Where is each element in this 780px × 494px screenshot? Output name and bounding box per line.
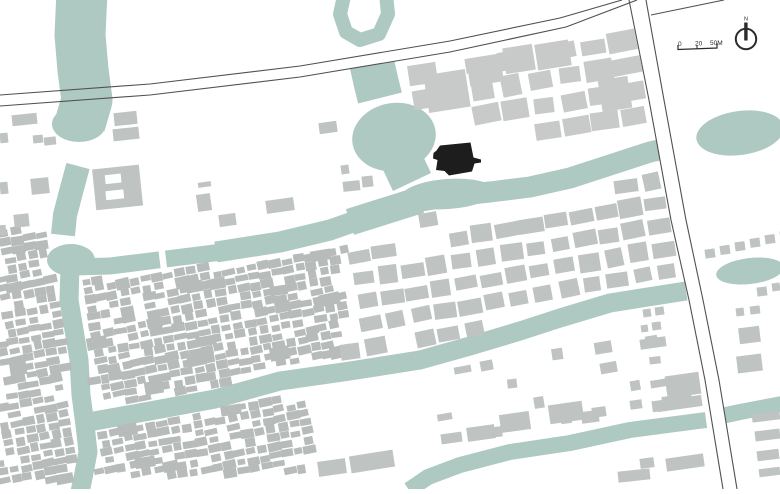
svg-text:50M: 50M: [710, 40, 723, 47]
svg-text:20: 20: [695, 41, 703, 48]
svg-text:N: N: [744, 17, 748, 23]
